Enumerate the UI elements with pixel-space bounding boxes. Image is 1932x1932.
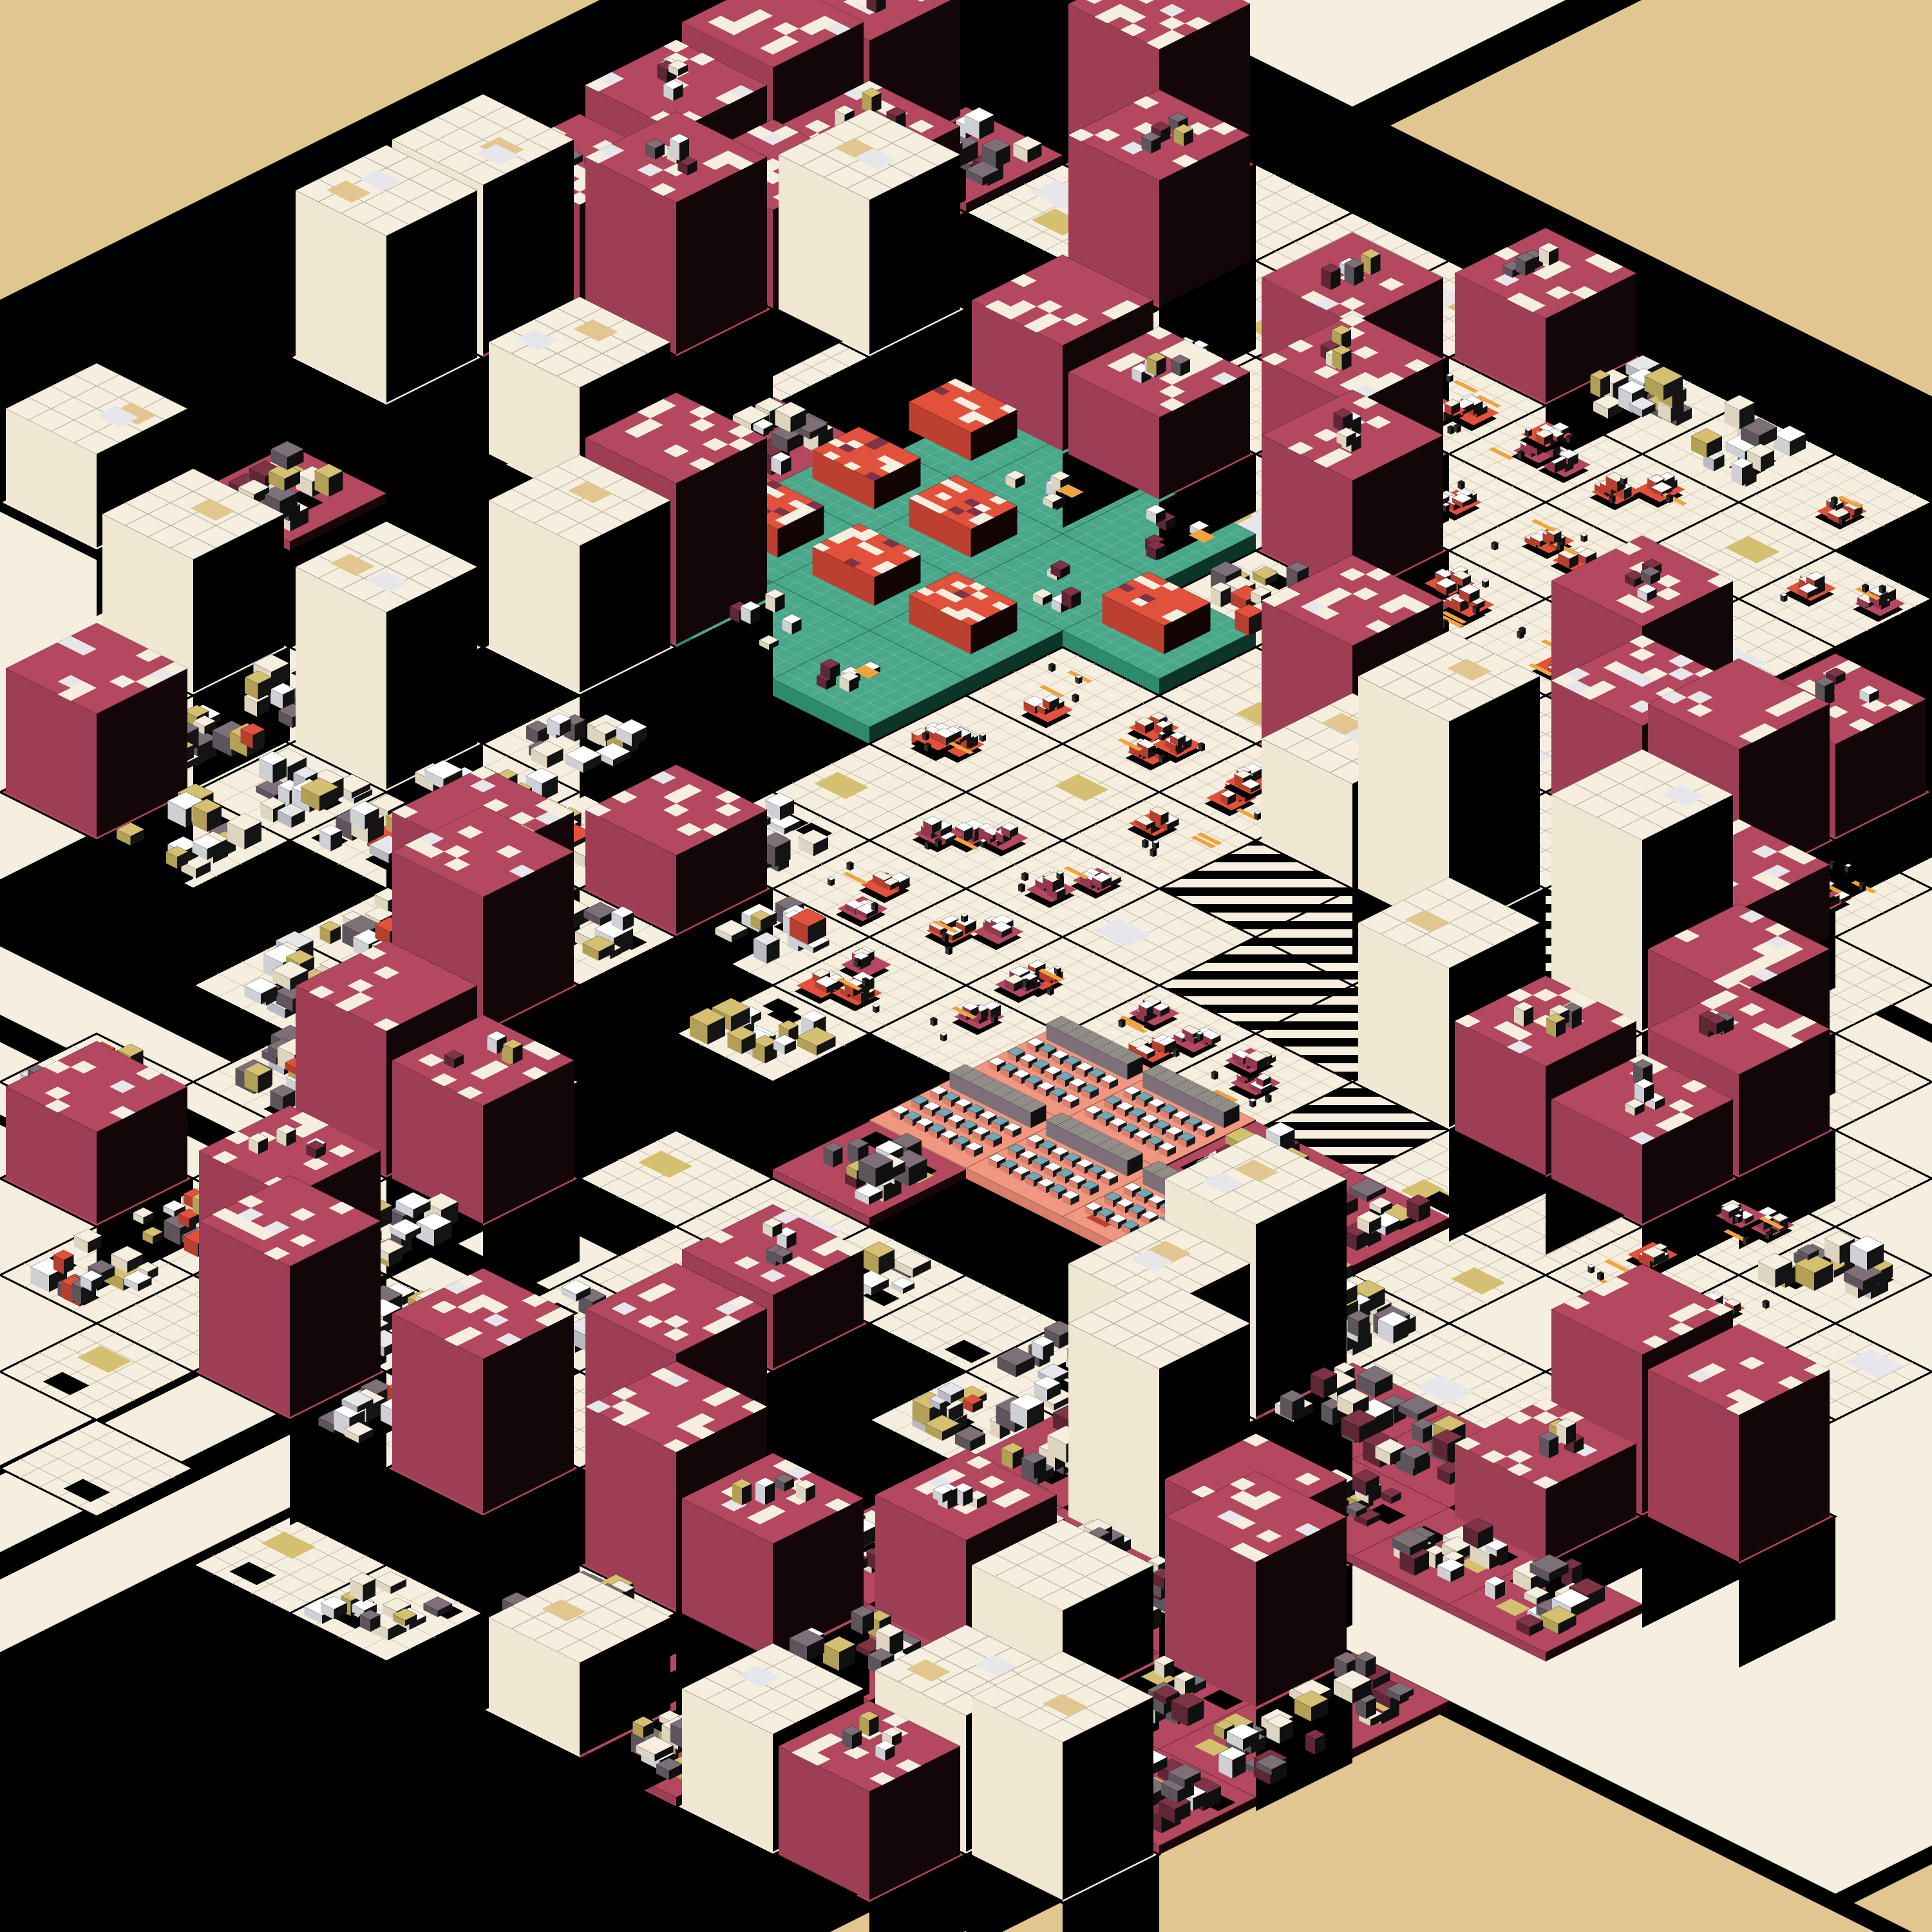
city-block-structure-towerC: [392, 1268, 574, 1513]
city-block-structure-towerW: [489, 455, 670, 692]
isometric-city-canvas: [0, 0, 1932, 1932]
city-block-structure-towerC: [1165, 1472, 1347, 1707]
city-block-structure-towerW: [779, 109, 960, 355]
artwork-frame: [0, 0, 1932, 1932]
city-block-structure-towerC: [6, 623, 187, 838]
city-block-structure-towerW: [296, 145, 477, 402]
city-block-structure-towerW: [296, 522, 477, 790]
city-block-structure-towerW: [972, 1651, 1153, 1900]
city-block-structure-towerC: [1648, 1324, 1830, 1562]
city-block-structure-towerC: [199, 1176, 381, 1417]
